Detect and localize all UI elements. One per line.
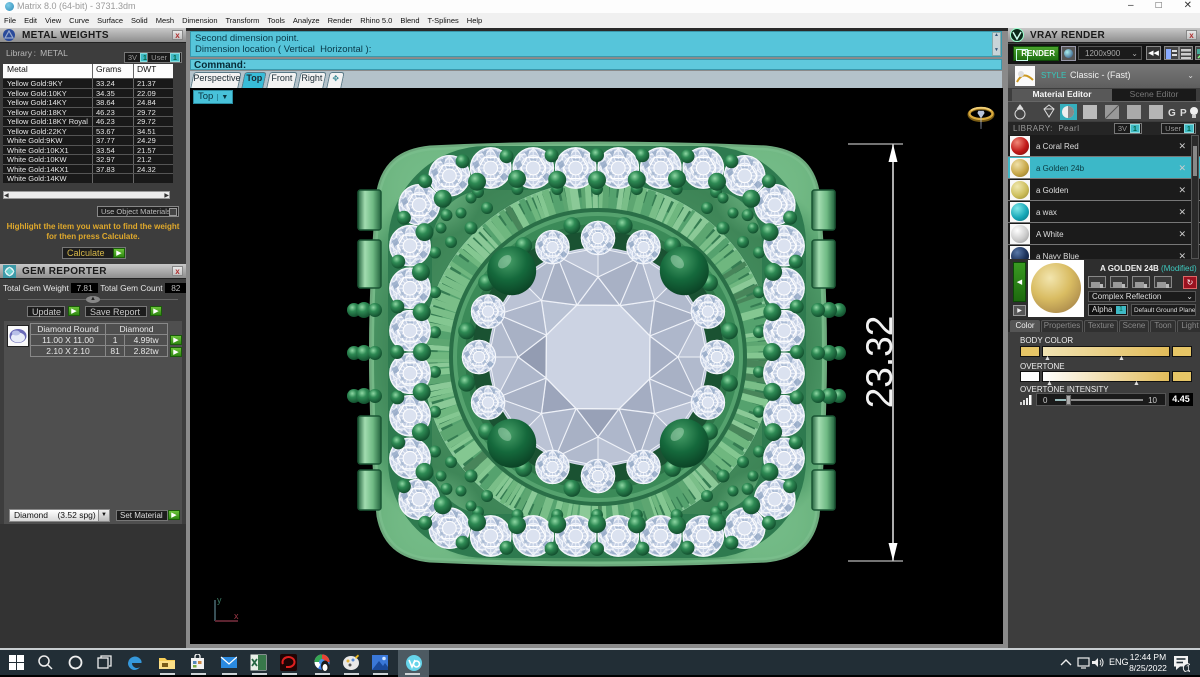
svg-text:23.32: 23.32 xyxy=(859,316,900,409)
svg-text:P: P xyxy=(1180,108,1187,119)
svg-text:G: G xyxy=(1168,108,1176,119)
svg-text:x: x xyxy=(234,611,239,621)
svg-text:1: 1 xyxy=(1186,664,1190,672)
svg-text:y: y xyxy=(217,595,222,605)
